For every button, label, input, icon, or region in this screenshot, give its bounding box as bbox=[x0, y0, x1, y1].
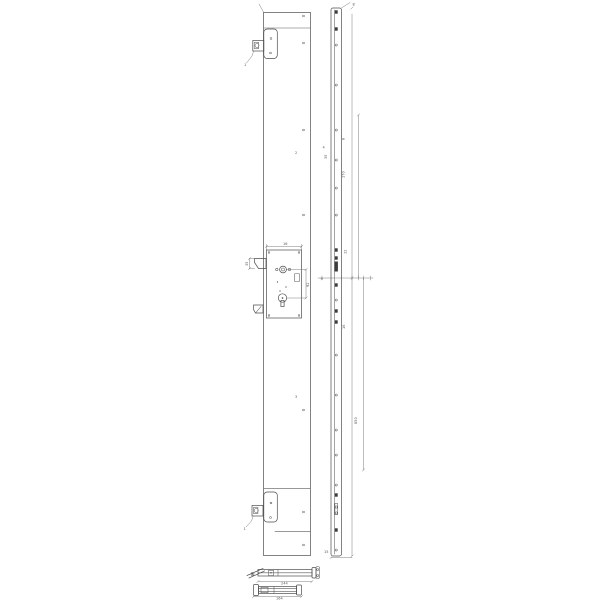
detail-section-a bbox=[247, 567, 320, 583]
corner-leader bbox=[259, 4, 264, 12]
dim-label: 164 bbox=[276, 597, 283, 600]
dim-label: 3 bbox=[295, 395, 297, 399]
dim-label: 850 bbox=[354, 417, 358, 424]
mounting-plate bbox=[264, 13, 311, 556]
case-component bbox=[295, 274, 300, 282]
cylinder-hole bbox=[278, 294, 286, 307]
dimension-chains bbox=[330, 3, 365, 559]
rail-holes bbox=[335, 10, 338, 551]
latch-bolt bbox=[255, 259, 267, 269]
dim-label: 2 bbox=[295, 151, 297, 155]
dimension-labels: 8835170129168501516923523411244164 bbox=[244, 3, 359, 600]
dim-label: 9 bbox=[321, 277, 323, 281]
faceplate-rail bbox=[331, 8, 342, 556]
plate-screw-holes bbox=[303, 15, 305, 546]
dim-label: 244 bbox=[281, 582, 288, 586]
section-a-lever bbox=[247, 569, 263, 576]
top-leader bbox=[342, 3, 351, 9]
dim-label: 16 bbox=[283, 242, 287, 246]
center-line bbox=[318, 276, 373, 280]
follower-hole bbox=[280, 266, 287, 273]
dim-label: 4 bbox=[323, 146, 326, 150]
dim-label: 1 bbox=[244, 63, 246, 67]
dim-label: 15 bbox=[324, 550, 328, 554]
dim-label: 8 bbox=[342, 138, 346, 140]
dim-label: 170 bbox=[342, 171, 346, 178]
top-keeper bbox=[247, 29, 278, 63]
technical-drawing: 8835170129168501516923523411244164 bbox=[0, 0, 600, 600]
dim-label: 12 bbox=[344, 250, 348, 254]
lock-case bbox=[248, 245, 307, 319]
section-b-right-flange bbox=[297, 585, 302, 595]
dim-label: 92 bbox=[306, 283, 310, 287]
drawing-canvas: 8835170129168501516923523411244164 bbox=[0, 0, 600, 600]
dim-label: 16 bbox=[342, 325, 346, 329]
section-b-left-flange bbox=[254, 585, 259, 596]
front-view bbox=[246, 4, 311, 556]
dim-label: 1 bbox=[244, 527, 246, 531]
dim-label: 35 bbox=[324, 155, 328, 159]
dim-label: 8 bbox=[353, 3, 355, 7]
latch-slot bbox=[335, 262, 338, 272]
dim-label: 35 bbox=[245, 262, 249, 266]
bottom-keeper bbox=[246, 492, 277, 527]
hook-bolt bbox=[254, 305, 264, 313]
section-a-end-cap bbox=[312, 568, 316, 579]
side-view bbox=[318, 3, 373, 559]
